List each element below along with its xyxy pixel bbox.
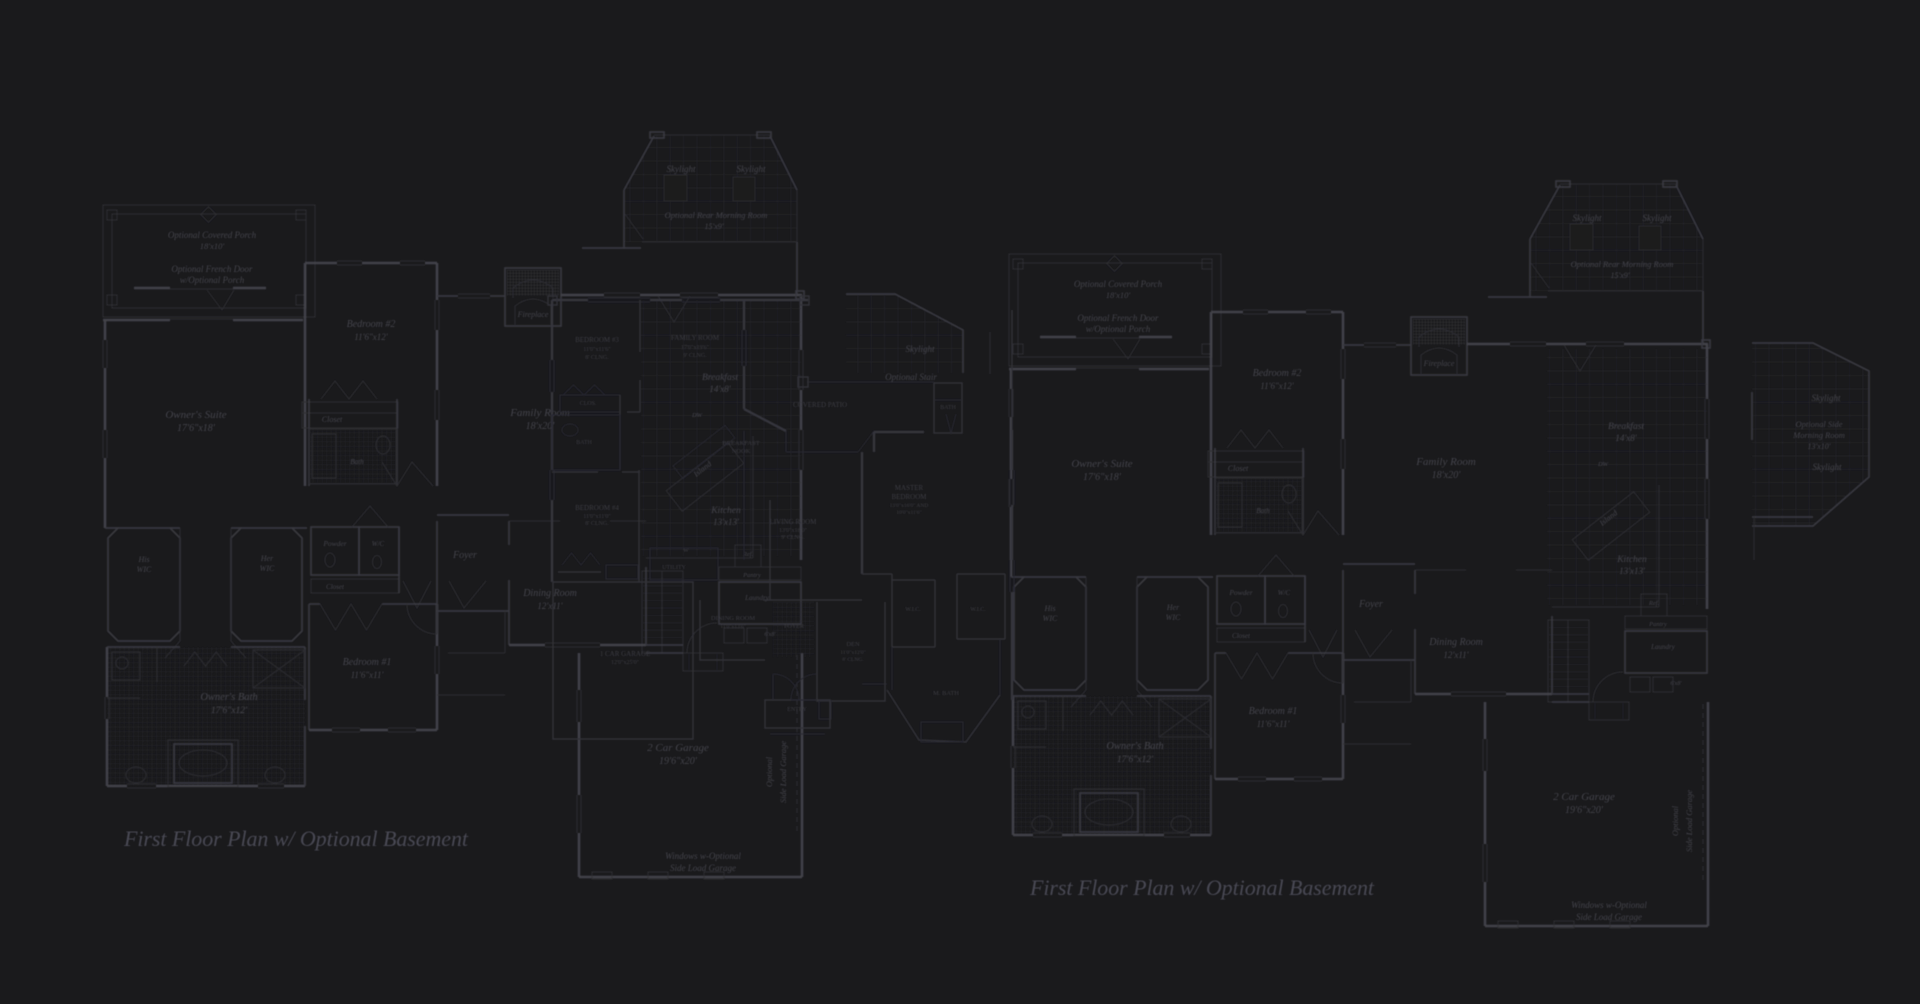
svg-text:12'0"x25'0": 12'0"x25'0" — [611, 660, 640, 666]
svg-text:17'0"x19'6": 17'0"x19'6" — [681, 345, 710, 351]
svg-text:UTILITY: UTILITY — [662, 565, 686, 571]
svg-text:W: W — [683, 548, 689, 554]
svg-text:11'0"x13'6": 11'0"x13'6" — [720, 624, 746, 630]
svg-text:9' CLNG.: 9' CLNG. — [781, 535, 805, 541]
svg-text:10'0"x11'6": 10'0"x11'6" — [896, 510, 922, 516]
svg-text:CLOS.: CLOS. — [580, 401, 597, 407]
svg-text:BATH: BATH — [576, 440, 592, 446]
svg-text:COVERED PATIO: COVERED PATIO — [793, 401, 847, 409]
svg-text:9' CLNG.: 9' CLNG. — [683, 353, 707, 359]
svg-text:W.I.C.: W.I.C. — [970, 607, 986, 613]
svg-text:BEDROOM #3: BEDROOM #3 — [575, 336, 619, 344]
svg-text:MASTER: MASTER — [895, 484, 924, 492]
svg-text:NOOK: NOOK — [732, 448, 751, 455]
svg-text:8' CLNG.: 8' CLNG. — [585, 355, 609, 361]
svg-text:Skylight: Skylight — [1812, 393, 1841, 403]
svg-text:Optional Stair: Optional Stair — [885, 372, 937, 382]
svg-text:W.I.C.: W.I.C. — [905, 607, 921, 613]
svg-text:FAMILY ROOM: FAMILY ROOM — [671, 334, 720, 342]
svg-text:13'0"x16'0" AND: 13'0"x16'0" AND — [890, 503, 929, 509]
svg-text:8' CLNG.: 8' CLNG. — [585, 521, 609, 527]
svg-text:8' CLNG.: 8' CLNG. — [842, 657, 864, 663]
svg-text:BATH: BATH — [940, 405, 956, 411]
svg-text:13'x10': 13'x10' — [1808, 442, 1831, 451]
svg-text:Skylight: Skylight — [1813, 462, 1842, 472]
svg-text:ENTRY: ENTRY — [787, 707, 807, 713]
svg-text:BEDROOM #4: BEDROOM #4 — [575, 504, 619, 512]
svg-text:11'0"x11'6": 11'0"x11'6" — [583, 347, 611, 353]
svg-text:M. BATH: M. BATH — [933, 690, 959, 697]
svg-text:Optional Side: Optional Side — [1796, 419, 1843, 429]
svg-text:11'0"x11'0": 11'0"x11'0" — [583, 514, 611, 520]
svg-text:Skylight: Skylight — [906, 344, 935, 354]
svg-text:BEDROOM: BEDROOM — [891, 493, 927, 501]
svg-text:FOYER: FOYER — [784, 624, 804, 630]
svg-text:Morning Room: Morning Room — [1792, 430, 1845, 440]
svg-text:DEN: DEN — [846, 641, 860, 648]
svg-text:1 CAR GARAGE: 1 CAR GARAGE — [600, 650, 651, 658]
svg-text:11'0"x12'0": 11'0"x12'0" — [840, 650, 866, 656]
svg-text:DINING ROOM: DINING ROOM — [711, 615, 755, 622]
svg-text:13'0"x18'0": 13'0"x18'0" — [779, 528, 808, 534]
svg-text:LIVING ROOM: LIVING ROOM — [770, 518, 818, 526]
